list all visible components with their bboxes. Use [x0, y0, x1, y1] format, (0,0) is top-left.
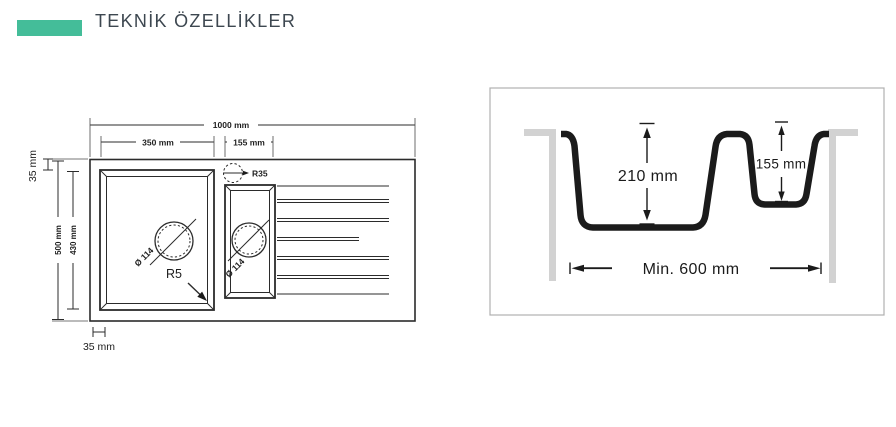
- min-cabinet-label: Min. 600 mm: [643, 261, 740, 278]
- left-margin-label: 35 mm: [83, 341, 115, 353]
- drainboard-grooves: [277, 186, 389, 294]
- top-view-diagram: Ø 114 Ø 114 R5 R35: [27, 118, 415, 353]
- drain-radius-label: R35: [252, 169, 268, 179]
- half-depth-label: 155 mm: [756, 157, 807, 172]
- top-margin-label: 35 mm: [27, 150, 39, 182]
- corner-radius-label: R5: [166, 267, 182, 281]
- main-bowl: [100, 170, 214, 310]
- drain-radius-callout: R35: [223, 164, 268, 183]
- drawings-layer: Ø 114 Ø 114 R5 R35: [0, 0, 896, 427]
- dim-half-bowl-width: 155 mm: [225, 136, 273, 157]
- half-bowl-width-label: 155 mm: [233, 138, 265, 148]
- dim-left-margin: 35 mm: [83, 327, 115, 353]
- overall-depth-label: 500 mm: [54, 225, 63, 255]
- main-drain-diameter-label: Ø 114: [132, 245, 155, 268]
- technical-specs-page: TEKNİK ÖZELLİKLER: [0, 0, 896, 427]
- main-depth-label: 210 mm: [618, 168, 678, 185]
- dim-main-bowl-width: 350 mm: [101, 136, 214, 157]
- main-drain: Ø 114: [132, 219, 196, 268]
- sink-outline: [90, 160, 415, 322]
- section-view-diagram: 210 mm 155 mm Min. 600 mm: [490, 88, 884, 315]
- half-drain-diameter-label: Ø 114: [223, 256, 246, 279]
- corner-radius-callout: R5: [166, 267, 207, 301]
- main-bowl-width-label: 350 mm: [142, 138, 174, 148]
- bowl-depth-label: 430 mm: [69, 225, 78, 255]
- overall-width-label: 1000 mm: [213, 120, 250, 130]
- dim-bowl-depth: 430 mm: [67, 172, 79, 310]
